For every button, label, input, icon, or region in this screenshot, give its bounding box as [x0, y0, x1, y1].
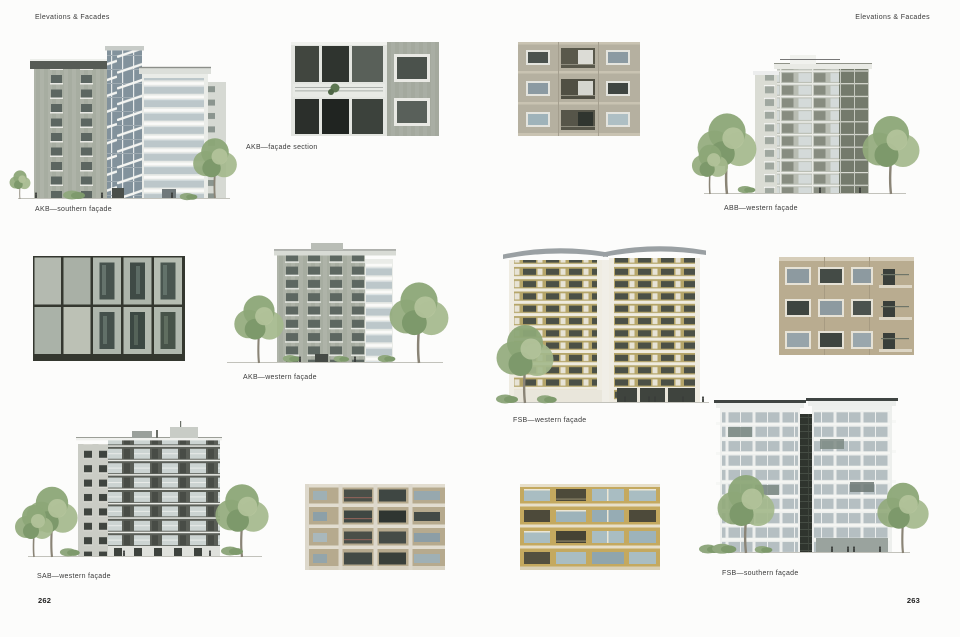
- figure-akb-western-elevation: [227, 243, 448, 363]
- caption-akb-western-facade: AKB—western façade: [243, 374, 317, 381]
- figure-beige-facade-photo: [305, 484, 445, 570]
- spread-artwork: [0, 0, 960, 637]
- figure-fsb-western-elevation: [496, 246, 709, 403]
- caption-fsb-southern-facade: FSB—southern façade: [722, 570, 799, 577]
- figure-fsb-southern-elevation: [699, 398, 929, 554]
- figure-akb-facade-section-photo: [291, 42, 439, 136]
- figure-abb-western-elevation: [692, 55, 920, 194]
- caption-sab-western-facade: SAB—western façade: [37, 573, 111, 580]
- caption-fsb-western-facade: FSB—western façade: [513, 417, 587, 424]
- page-number-left: 262: [38, 596, 51, 605]
- figure-facade-closeup-photo: [33, 256, 185, 361]
- page-number-right: 263: [907, 596, 920, 605]
- figure-akb-southern-elevation: [10, 46, 237, 200]
- caption-akb-facade-section: AKB—façade section: [246, 144, 318, 151]
- book-spread: Elevations & Facades Elevations & Facade…: [0, 0, 960, 637]
- figure-tan-facade-photo: [779, 257, 914, 355]
- figure-balcony-facade-photo: [518, 42, 640, 136]
- caption-akb-southern-facade: AKB—southern façade: [35, 206, 112, 213]
- figure-yellow-brick-facade-photo: [520, 484, 660, 570]
- figure-sab-western-elevation: [15, 421, 269, 557]
- caption-abb-western-facade: ABB—western façade: [724, 205, 798, 212]
